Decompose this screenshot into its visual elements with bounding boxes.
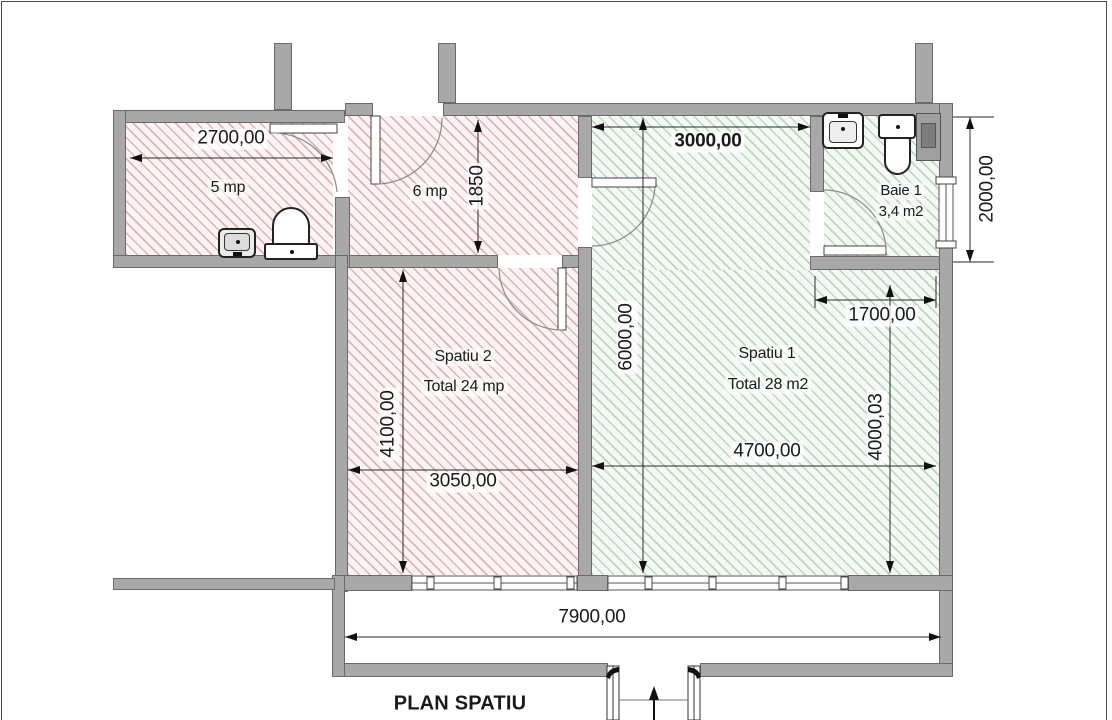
- dim-label-1850: 1850: [468, 162, 489, 209]
- door-spatiu2: [499, 268, 566, 330]
- room-label-6mp: 6 mp: [410, 183, 451, 201]
- door-swing-arc: [271, 133, 337, 192]
- page-title: PLAN SPATIU: [394, 693, 527, 716]
- door-leaf: [371, 116, 380, 184]
- window-mullion: [779, 577, 786, 589]
- room-label-spatiu1: Spatiu 1: [735, 345, 798, 363]
- window-mullion: [709, 577, 716, 589]
- dim-label-2700: 2700,00: [194, 129, 267, 150]
- room-label-baie1-area: 3,4 m2: [876, 204, 927, 221]
- room-label-spatiu2: Spatiu 2: [431, 348, 494, 366]
- door-leaf: [592, 178, 656, 187]
- door-swing-arc: [378, 118, 442, 184]
- window-mullion: [841, 577, 848, 589]
- entrance-arrow-icon: [649, 686, 659, 700]
- dim-label-7900: 7900,00: [555, 608, 628, 629]
- floor-plan: 2700,00 5 mp 6 mp 1850 3000,00 6000,00 B…: [0, 0, 1112, 720]
- dim-label-3000: 3000,00: [671, 132, 744, 153]
- entrance: [606, 666, 701, 720]
- window-mullion: [567, 577, 574, 589]
- dim-label-4700: 4700,00: [730, 442, 803, 463]
- window-strip-spatiu1: [608, 576, 848, 590]
- dim-label-3050: 3050,00: [426, 472, 499, 493]
- window-mullion: [645, 577, 652, 589]
- door-leaf: [824, 246, 886, 255]
- door-leaf: [558, 268, 566, 330]
- dim-label-4100: 4100,00: [379, 387, 400, 460]
- door-swing-arc: [592, 186, 655, 246]
- room-label-spatiu1-total: Total 28 m2: [725, 376, 812, 394]
- room-label-5mp: 5 mp: [208, 179, 249, 197]
- room-label-spatiu2-total: Total 24 mp: [421, 378, 508, 396]
- window-baie1-right: [936, 177, 956, 248]
- door-room6-top: [371, 116, 442, 184]
- dim-label-4000: 4000,03: [867, 390, 888, 463]
- door-baie1: [824, 190, 886, 255]
- dim-label-1700: 1700,00: [845, 306, 918, 327]
- dim-label-6000: 6000,00: [617, 300, 638, 373]
- door-leaf: [270, 124, 337, 133]
- door-swing-arc: [499, 268, 562, 330]
- window-mullion: [494, 577, 501, 589]
- room-label-baie1: Baie 1: [877, 183, 924, 200]
- dim-label-2000: 2000,00: [978, 152, 999, 225]
- door-spatiu1-middle: [592, 178, 656, 246]
- dimension-arrows: [130, 117, 974, 641]
- window-strip-spatiu2: [412, 576, 577, 590]
- window-mullion: [427, 577, 434, 589]
- dimension-lines: [130, 117, 994, 637]
